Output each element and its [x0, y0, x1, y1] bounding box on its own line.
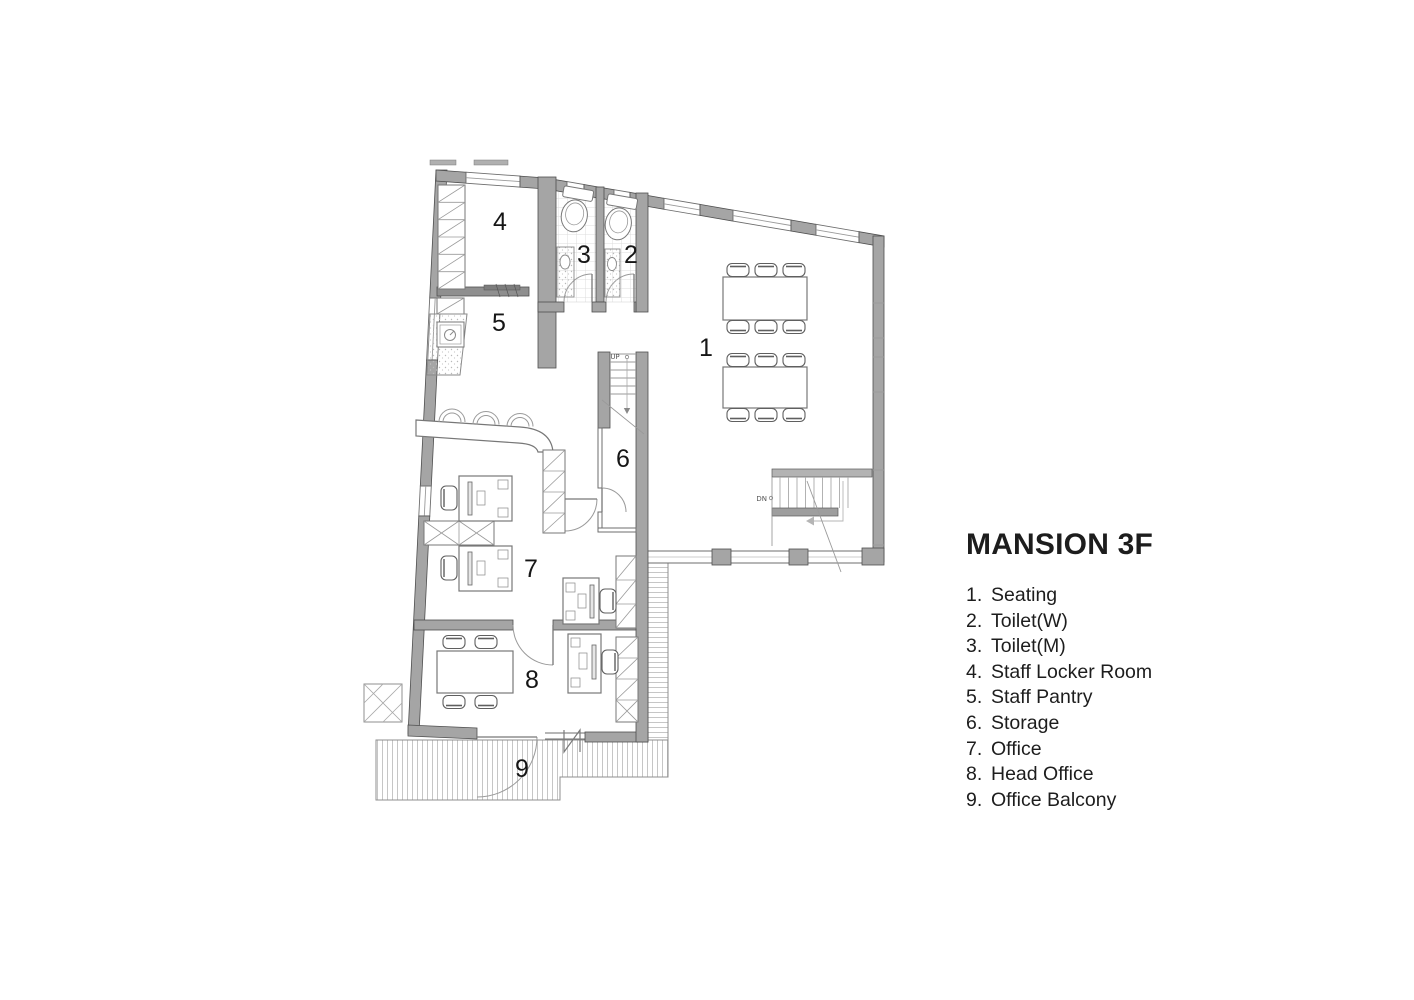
room-label-5: 5	[492, 309, 506, 337]
workstation	[563, 578, 616, 624]
room-label-2: 2	[624, 241, 638, 269]
legend-item-number: 1.	[966, 583, 991, 609]
dining-table	[723, 367, 807, 408]
overhang-mark	[430, 160, 456, 165]
legend-item-label: Toilet(M)	[991, 634, 1066, 660]
legend-item-label: Office	[991, 737, 1042, 763]
room-label-3: 3	[577, 241, 591, 269]
legend-item-label: Storage	[991, 711, 1059, 737]
stair-dn-label: DN	[756, 495, 767, 503]
legend-item-number: 4.	[966, 660, 991, 686]
page: { "title": "MANSION 3F", "rooms": [ {"n"…	[0, 0, 1414, 1000]
office-desks	[441, 476, 616, 624]
legend-item-number: 5.	[966, 685, 991, 711]
workstation	[441, 476, 512, 521]
legend-item-7: 7.Office	[966, 737, 1153, 763]
workstation	[568, 634, 618, 693]
exterior-unit	[364, 684, 402, 722]
seating-tables	[723, 264, 807, 422]
legend-title: MANSION 3F	[966, 528, 1153, 562]
legend-item-number: 6.	[966, 711, 991, 737]
legend-item-label: Staff Pantry	[991, 685, 1093, 711]
meeting-table	[437, 651, 513, 693]
legend-item-label: Seating	[991, 583, 1057, 609]
legend-item-number: 8.	[966, 762, 991, 788]
room-label-9: 9	[515, 755, 529, 783]
room-label-1: 1	[699, 334, 713, 362]
corridor-door	[565, 499, 597, 531]
head-office-door	[513, 625, 553, 665]
legend-item-3: 3.Toilet(M)	[966, 634, 1153, 660]
legend-item-4: 4.Staff Locker Room	[966, 660, 1153, 686]
legend-item-label: Head Office	[991, 762, 1094, 788]
kitchen-counter	[427, 314, 467, 375]
storage-door	[602, 488, 626, 512]
legend: MANSION 3F 1.Seating 2.Toilet(W) 3.Toile…	[966, 528, 1153, 813]
legend-item-5: 5.Staff Pantry	[966, 685, 1153, 711]
room-label-8: 8	[525, 666, 539, 694]
legend-item-number: 7.	[966, 737, 991, 763]
stair-dn: DN	[756, 469, 872, 572]
legend-item-label: Office Balcony	[991, 788, 1116, 814]
room-label-7: 7	[524, 555, 538, 583]
legend-item-8: 8.Head Office	[966, 762, 1153, 788]
legend-item-2: 2.Toilet(W)	[966, 609, 1153, 635]
legend-item-number: 2.	[966, 609, 991, 635]
floor-plan: UP DN	[0, 0, 1414, 1000]
window-band-south	[648, 548, 884, 565]
legend-item-label: Toilet(W)	[991, 609, 1068, 635]
stair-up-label: UP	[610, 353, 619, 361]
workstation	[441, 546, 512, 591]
legend-item-6: 6.Storage	[966, 711, 1153, 737]
legend-item-label: Staff Locker Room	[991, 660, 1152, 686]
overhang-mark	[474, 160, 508, 165]
legend-item-1: 1.Seating	[966, 583, 1153, 609]
legend-item-number: 9.	[966, 788, 991, 814]
reception-counter	[416, 409, 553, 452]
dining-table	[723, 277, 807, 320]
legend-items: 1.Seating 2.Toilet(W) 3.Toilet(M) 4.Staf…	[966, 583, 1153, 813]
legend-item-number: 3.	[966, 634, 991, 660]
room-label-4: 4	[493, 208, 507, 236]
room-label-6: 6	[616, 445, 630, 473]
legend-item-9: 9.Office Balcony	[966, 788, 1153, 814]
